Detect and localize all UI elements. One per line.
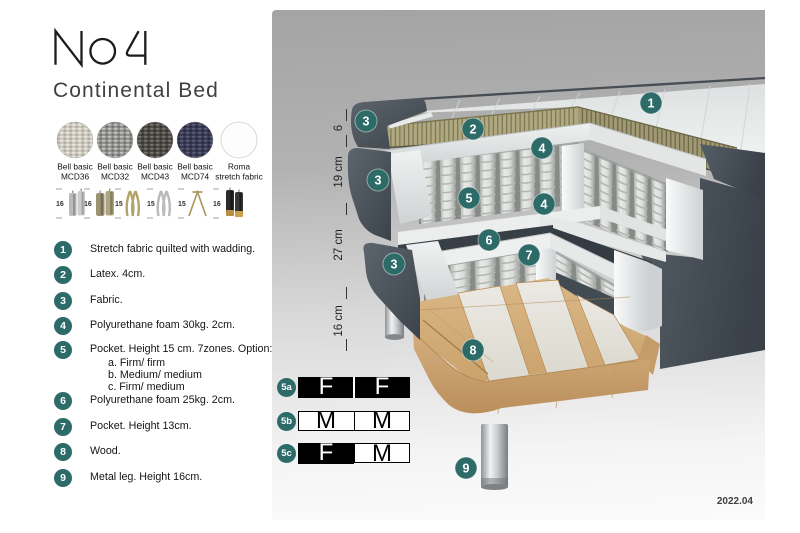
svg-text:9: 9 <box>463 462 470 476</box>
svg-text:6: 6 <box>486 234 493 248</box>
svg-text:1: 1 <box>648 97 655 111</box>
svg-text:4: 4 <box>539 142 546 156</box>
svg-text:4: 4 <box>541 198 548 212</box>
svg-text:3: 3 <box>375 174 382 188</box>
svg-text:3: 3 <box>391 258 398 272</box>
svg-text:3: 3 <box>363 115 370 129</box>
svg-text:2: 2 <box>470 123 477 137</box>
svg-text:8: 8 <box>470 344 477 358</box>
svg-text:5: 5 <box>466 192 473 206</box>
svg-text:7: 7 <box>526 249 533 263</box>
